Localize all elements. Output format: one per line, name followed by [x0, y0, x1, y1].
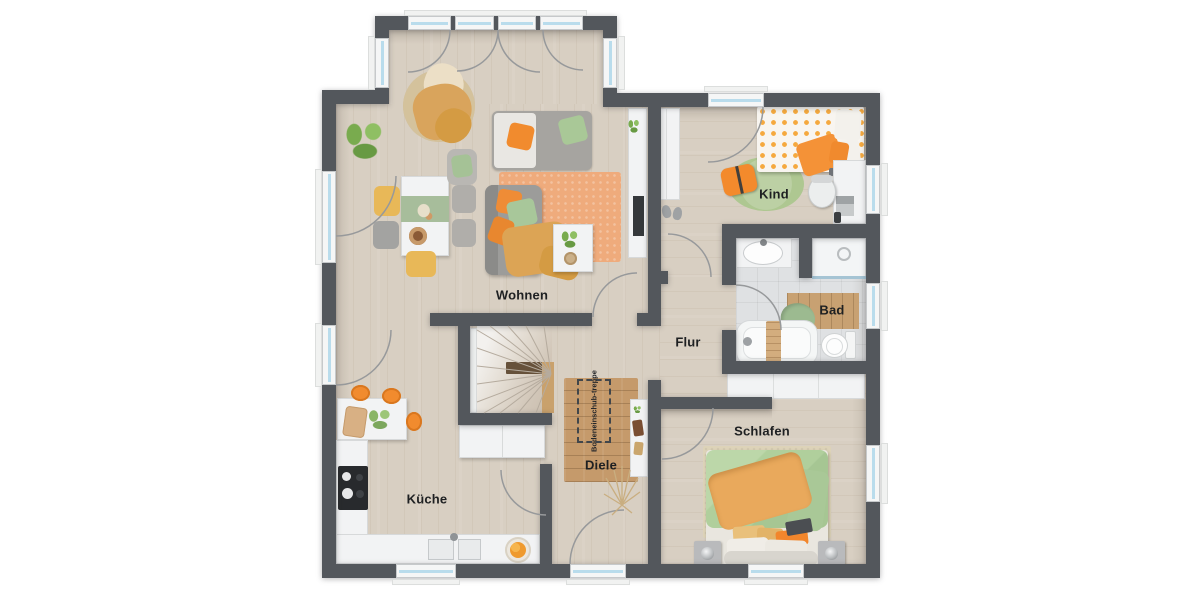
wall-shadow: [660, 409, 772, 419]
window: [748, 564, 804, 578]
wall-shadow: [389, 30, 603, 44]
stair-wood-edge: [542, 362, 554, 413]
window-sill: [315, 169, 322, 265]
window-sill: [368, 36, 375, 90]
room-label-bad: Bad: [819, 303, 844, 318]
bath-caddy: [766, 321, 781, 365]
terrace-door: [322, 325, 336, 385]
shower-drain: [837, 247, 851, 261]
window-sill: [881, 281, 888, 331]
lamp: [701, 547, 714, 560]
door-threshold: [566, 579, 630, 585]
phone: [834, 212, 841, 223]
closet-schlafen: [727, 373, 865, 399]
window-sill: [881, 443, 888, 504]
room-label-diele: Diele: [585, 458, 617, 473]
burner: [356, 474, 363, 481]
window: [408, 16, 451, 30]
wall-segment: [722, 224, 867, 238]
wall-segment: [648, 380, 661, 564]
room-label-wohnen: Wohnen: [496, 288, 548, 303]
wall-segment: [458, 413, 552, 425]
attic-stair-hatch: Bodeneinschub- treppe: [577, 379, 611, 443]
sink-basin: [428, 539, 454, 560]
wall-segment: [637, 313, 661, 326]
shower-glass: [812, 276, 866, 279]
wall-segment: [799, 238, 812, 278]
stair-rail: [470, 328, 477, 413]
entrance-door: [570, 564, 626, 578]
tv: [633, 196, 644, 236]
window: [603, 38, 617, 88]
terrace-door: [322, 171, 336, 263]
burner: [342, 472, 351, 481]
desk-chair: [808, 176, 836, 208]
sideboard-decor: [633, 442, 643, 456]
pillow-orange: [506, 122, 536, 152]
window-sill: [404, 10, 587, 16]
toilet-bowl: [821, 333, 848, 358]
burner: [356, 490, 364, 498]
window: [866, 283, 880, 329]
chair-gray: [452, 185, 476, 213]
attic-stair-hatch-text: Bodeneinschub- treppe: [579, 381, 609, 441]
chair-cushion-green: [451, 154, 474, 179]
wall-segment: [540, 464, 552, 564]
window-sill: [704, 86, 768, 92]
window-sill: [618, 36, 625, 90]
window: [396, 564, 456, 578]
hatch-label-line2: treppe: [588, 370, 599, 393]
floor-plan-canvas: Bodeneinschub- treppe Wohnen Küche Diele…: [0, 0, 1200, 600]
wall-segment: [648, 107, 661, 320]
wall-segment: [722, 361, 867, 374]
coffee-table-plant: [558, 226, 582, 252]
stool-orange: [406, 412, 422, 431]
stool-orange: [351, 385, 370, 401]
faucet: [450, 533, 458, 541]
wall-segment: [648, 271, 668, 284]
window: [866, 445, 880, 502]
window-sill: [392, 579, 460, 585]
shelf-plant: [626, 116, 642, 136]
flower-centerpiece: [412, 198, 438, 226]
potted-plant: [338, 112, 392, 168]
chair-gray: [373, 221, 399, 249]
window: [375, 38, 389, 88]
coffee-table-bowl: [564, 252, 577, 265]
faucet: [760, 239, 767, 246]
fruit: [510, 542, 526, 558]
bowl: [409, 227, 427, 245]
lamp: [825, 547, 838, 560]
sideboard-decor: [632, 419, 644, 436]
bed-kind-pillow: [834, 109, 862, 141]
window-sill: [744, 579, 808, 585]
chair-yellow: [406, 251, 436, 277]
window: [455, 16, 494, 30]
room-label-kueche: Küche: [407, 492, 448, 507]
wall-segment: [722, 224, 736, 285]
stair-cabinet: [459, 425, 545, 458]
window: [540, 16, 583, 30]
window-sill: [315, 323, 322, 387]
sideboard-plant: [632, 404, 643, 415]
stool-orange: [382, 388, 401, 404]
wall-segment: [660, 397, 772, 409]
room-label-flur: Flur: [675, 335, 700, 350]
sink-basin: [458, 539, 481, 560]
window: [708, 93, 764, 107]
burner: [342, 488, 353, 499]
wall-segment: [458, 326, 470, 413]
chair-yellow: [374, 186, 400, 216]
room-label-kind: Kind: [759, 187, 789, 202]
window: [498, 16, 536, 30]
chair-gray: [452, 219, 476, 247]
hatch-label-line1: Bodeneinschub-: [588, 393, 599, 452]
window: [866, 165, 880, 214]
room-label-schlafen: Schlafen: [734, 424, 790, 439]
herbs: [364, 404, 396, 434]
wall-segment: [430, 313, 592, 326]
window-sill: [881, 163, 888, 216]
